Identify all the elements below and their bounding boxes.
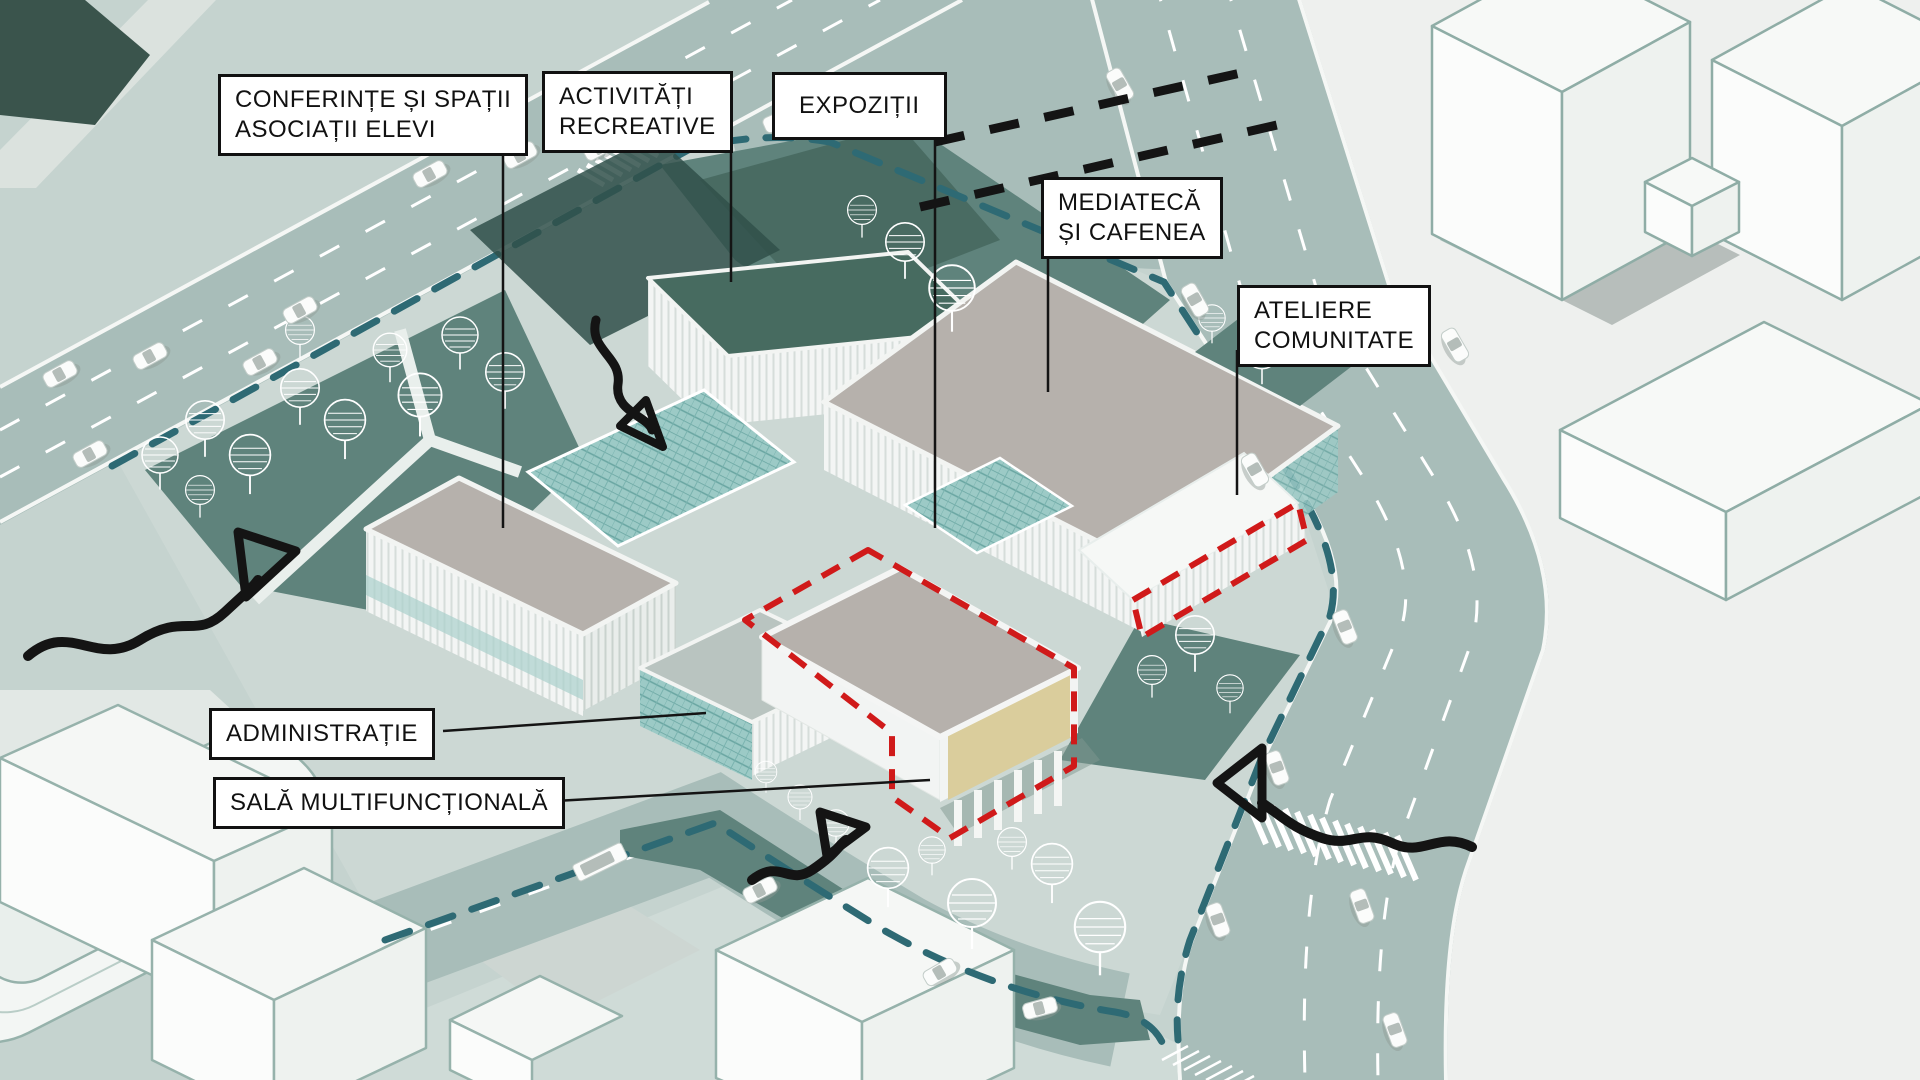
label-sala-multifunctionala: SALĂ MULTIFUNCȚIONALĂ (213, 777, 565, 829)
label-text: ADMINISTRAȚIE (226, 719, 418, 749)
label-text: CONFERINȚE ȘI SPAȚII (235, 85, 511, 115)
label-ateliere-comunitate: ATELIERE COMUNITATE (1237, 285, 1431, 367)
label-text: ACTIVITĂȚI (559, 82, 716, 112)
label-conferinte-spatii-asociatii: CONFERINȚE ȘI SPAȚII ASOCIAȚII ELEVI (218, 74, 528, 156)
label-administratie: ADMINISTRAȚIE (209, 708, 435, 760)
label-text: SALĂ MULTIFUNCȚIONALĂ (230, 788, 548, 818)
label-text: ȘI CAFENEA (1058, 218, 1206, 248)
site-plan-canvas (0, 0, 1920, 1080)
label-mediateca-cafenea: MEDIATECĂ ȘI CAFENEA (1041, 177, 1223, 259)
masterplan-diagram: CONFERINȚE ȘI SPAȚII ASOCIAȚII ELEVI ACT… (0, 0, 1920, 1080)
label-activitati-recreative: ACTIVITĂȚI RECREATIVE (542, 71, 733, 153)
label-text: ATELIERE (1254, 296, 1414, 326)
label-text: EXPOZIȚII (799, 91, 920, 121)
label-text: COMUNITATE (1254, 326, 1414, 356)
label-text: RECREATIVE (559, 112, 716, 142)
label-text: MEDIATECĂ (1058, 188, 1206, 218)
label-expozitii: EXPOZIȚII (772, 72, 947, 140)
label-text: ASOCIAȚII ELEVI (235, 115, 511, 145)
